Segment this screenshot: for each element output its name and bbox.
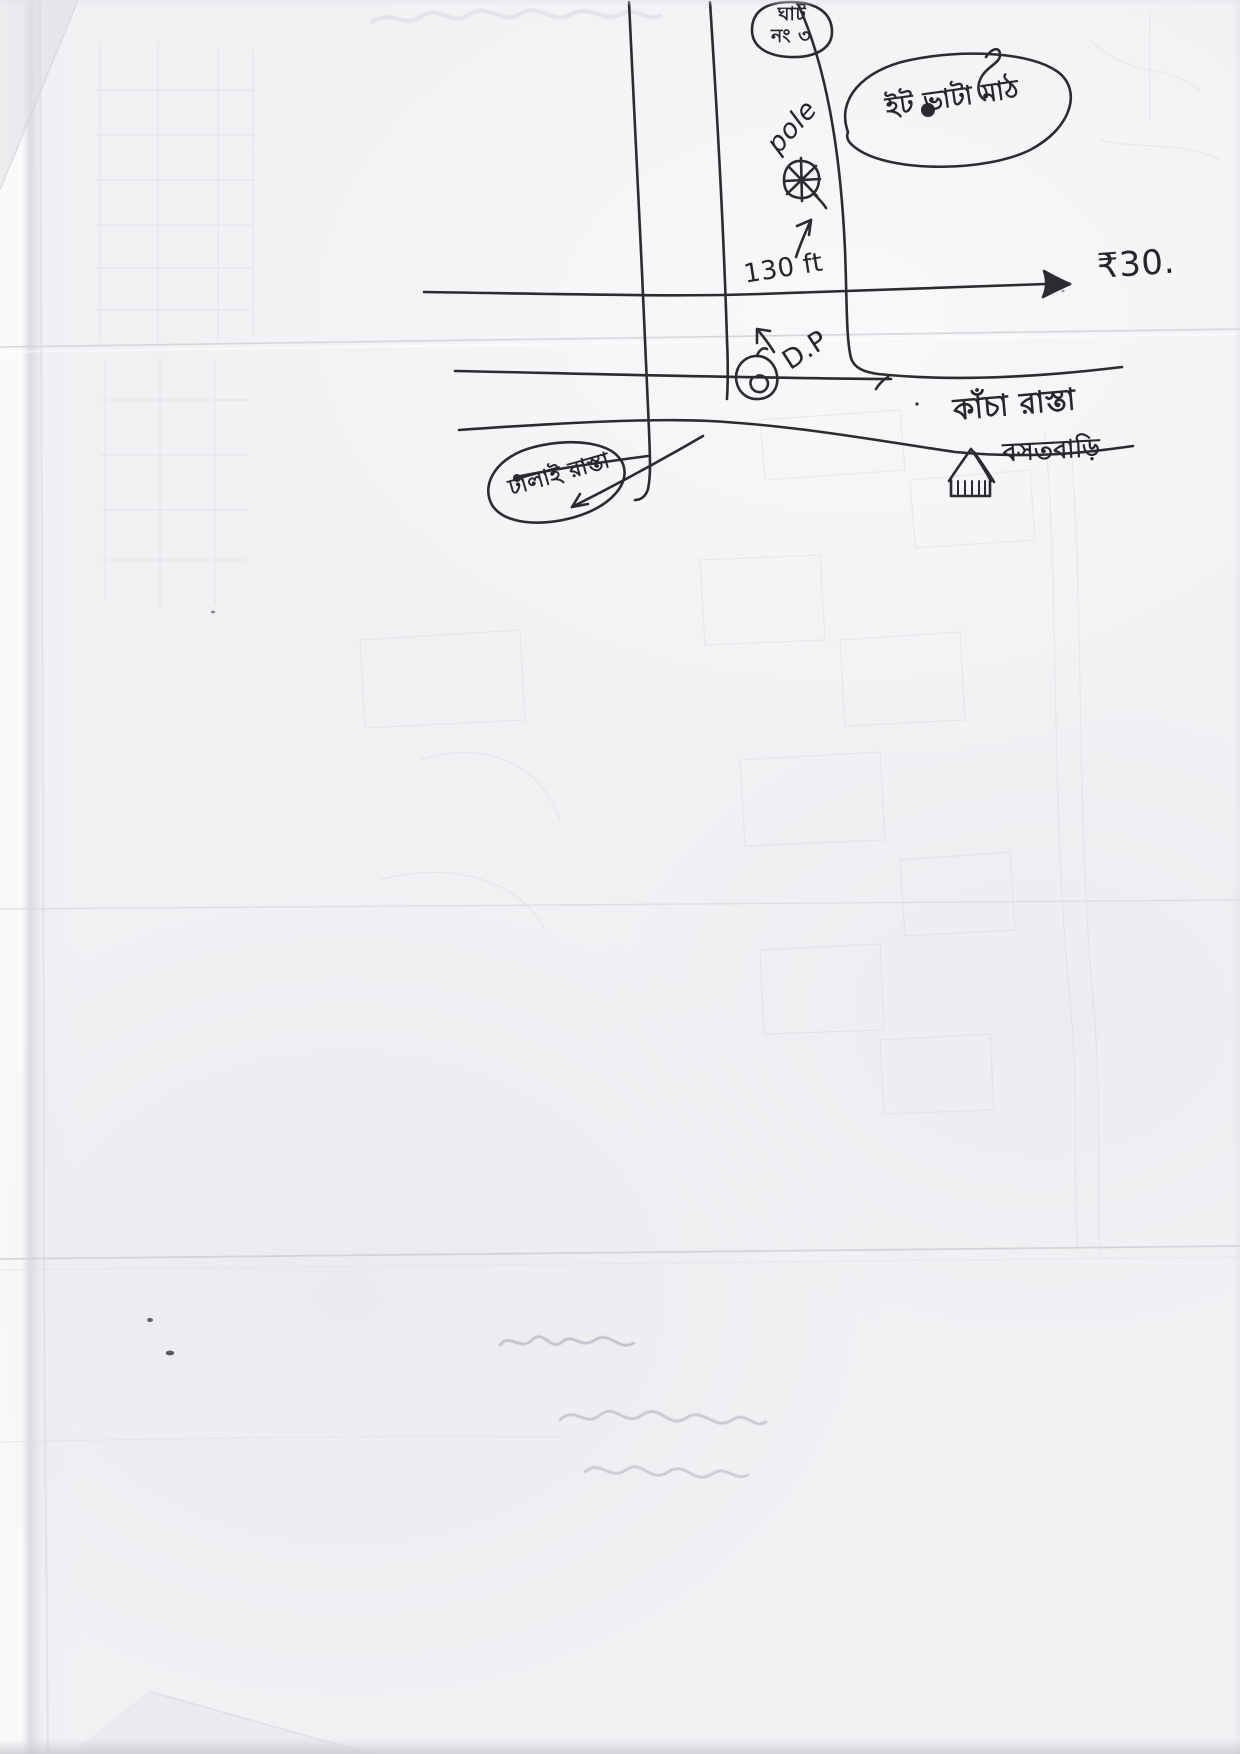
road-vertical-west — [629, 2, 650, 500]
house-symbol — [949, 449, 994, 496]
scan-edge-bottom — [0, 1739, 1240, 1754]
bleedthrough-map — [95, 10, 1220, 1255]
faint-script-mark-3 — [585, 1467, 748, 1477]
road-horizontal-main — [424, 284, 1046, 295]
dp-symbol — [736, 329, 777, 399]
faint-script-mark-2 — [560, 1411, 766, 1424]
east-arrowhead — [1043, 271, 1070, 297]
road-vertical-far-east-bending — [798, 4, 1122, 378]
scanned-sketch-map-page: ঘাট নং ৩ pole 130 ft ₹30. D.P কাঁচা রাস্… — [0, 0, 1240, 1754]
paper-creases — [0, 0, 1240, 1754]
faint-script-mark-1 — [500, 1337, 634, 1346]
bleedthrough-script — [372, 11, 766, 1478]
top-circle-label-line1: ঘাট — [766, 5, 818, 25]
scan-edge-top — [0, 0, 1240, 6]
pole-symbol — [784, 158, 826, 208]
rate-label: ₹30. — [1096, 245, 1176, 286]
top-circle-label-line2: নং ৩ — [762, 27, 820, 47]
road-vertical-east — [710, 2, 728, 399]
road-lower-upper-line — [455, 371, 891, 379]
sketch-artwork — [0, 0, 1240, 1754]
scan-edge-right — [1233, 0, 1240, 1754]
pen-dot — [915, 402, 918, 405]
faint-top-mirrored-script — [372, 11, 660, 22]
house-label: বসতবাড়ি — [1002, 435, 1101, 466]
